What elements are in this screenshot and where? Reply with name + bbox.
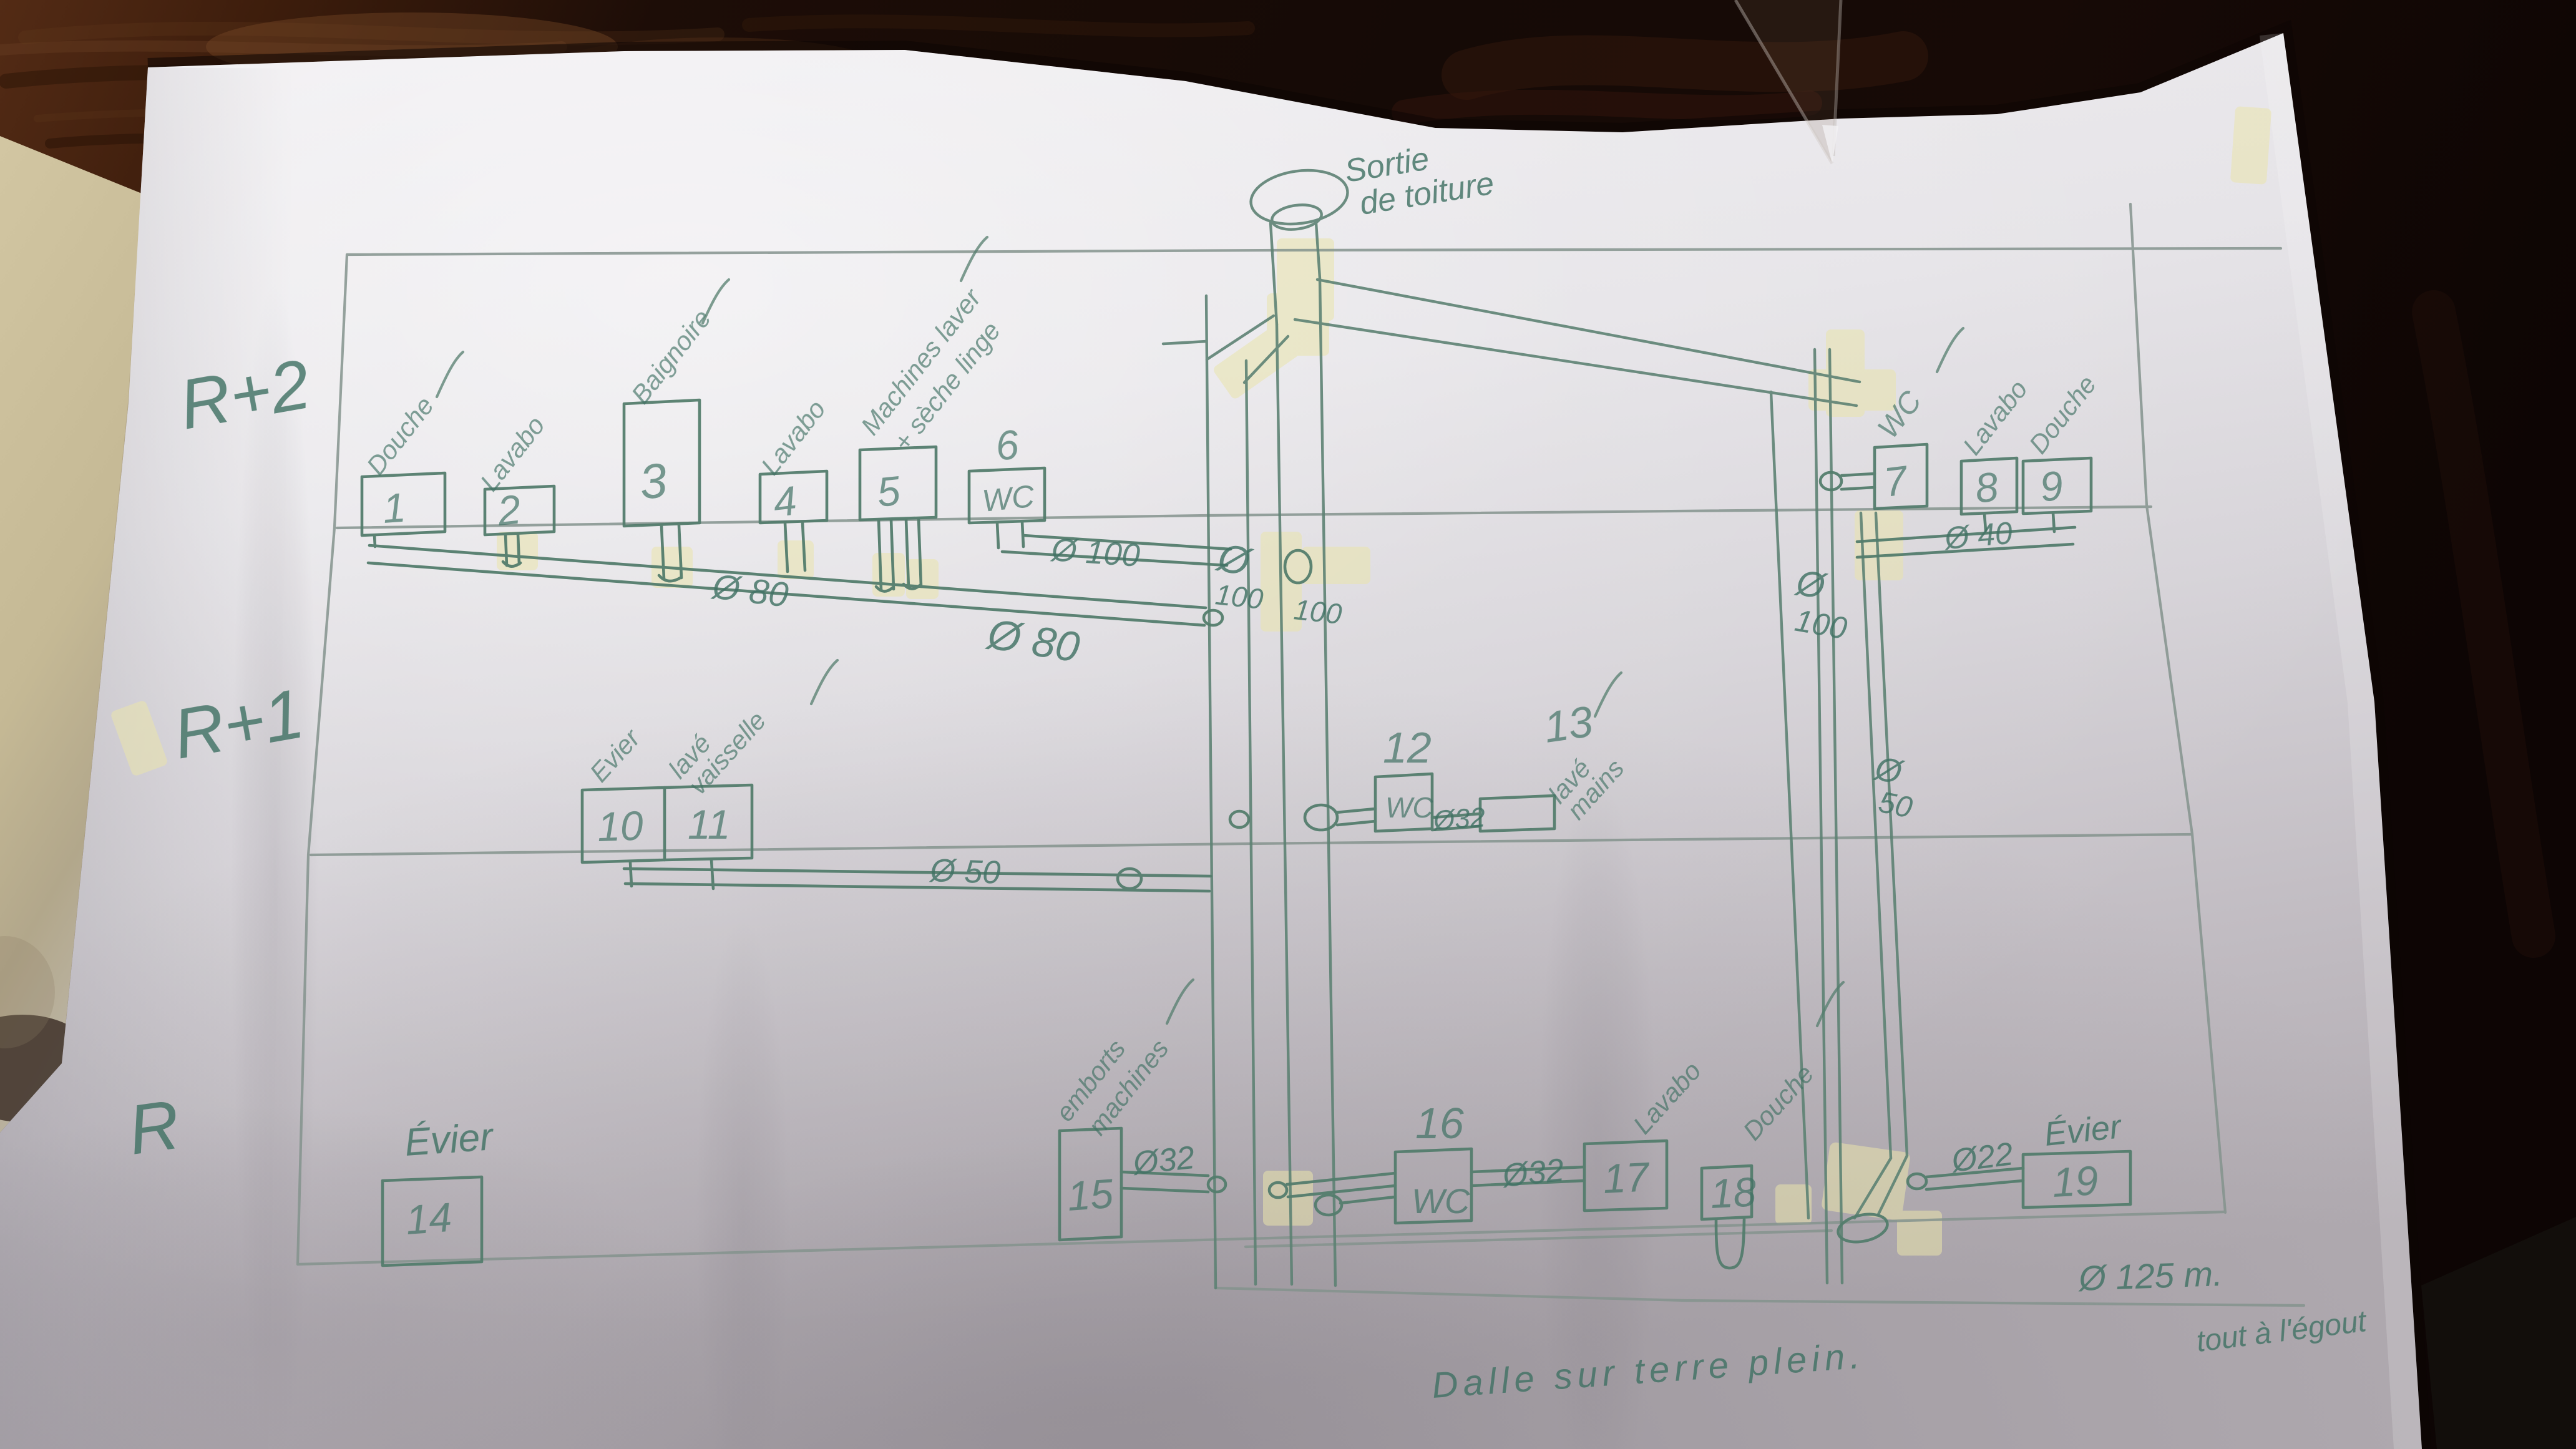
svg-text:R: R bbox=[124, 1085, 185, 1169]
svg-text:13: 13 bbox=[1541, 697, 1596, 752]
svg-text:18: 18 bbox=[1709, 1168, 1757, 1217]
svg-text:Ø 100: Ø 100 bbox=[1049, 532, 1141, 574]
svg-text:10: 10 bbox=[597, 802, 644, 850]
svg-text:19: 19 bbox=[2051, 1157, 2099, 1206]
svg-text:12: 12 bbox=[1383, 723, 1432, 772]
svg-text:Ø32: Ø32 bbox=[1500, 1152, 1566, 1194]
svg-text:11: 11 bbox=[688, 801, 731, 847]
svg-text:3: 3 bbox=[637, 452, 670, 510]
svg-text:1: 1 bbox=[381, 484, 407, 532]
svg-text:Évier: Évier bbox=[403, 1115, 495, 1164]
svg-text:Ø 125 m.: Ø 125 m. bbox=[2077, 1254, 2223, 1298]
svg-text:WC: WC bbox=[980, 478, 1037, 518]
svg-text:Ø22: Ø22 bbox=[1948, 1136, 2015, 1179]
svg-text:15: 15 bbox=[1066, 1170, 1115, 1219]
svg-text:14: 14 bbox=[404, 1194, 453, 1243]
svg-text:WC: WC bbox=[1412, 1181, 1470, 1221]
svg-text:16: 16 bbox=[1415, 1099, 1464, 1148]
svg-text:50: 50 bbox=[1876, 786, 1916, 825]
svg-text:17: 17 bbox=[1602, 1153, 1651, 1202]
svg-text:4: 4 bbox=[771, 477, 799, 525]
svg-text:100: 100 bbox=[1214, 578, 1265, 615]
svg-text:100: 100 bbox=[1292, 593, 1344, 630]
svg-text:Ø32: Ø32 bbox=[1130, 1139, 1196, 1182]
svg-text:Ø 40: Ø 40 bbox=[1942, 515, 2014, 556]
svg-text:Ø 50: Ø 50 bbox=[929, 852, 1002, 891]
svg-text:WC: WC bbox=[1385, 791, 1433, 824]
svg-text:Ø32: Ø32 bbox=[1431, 802, 1486, 836]
